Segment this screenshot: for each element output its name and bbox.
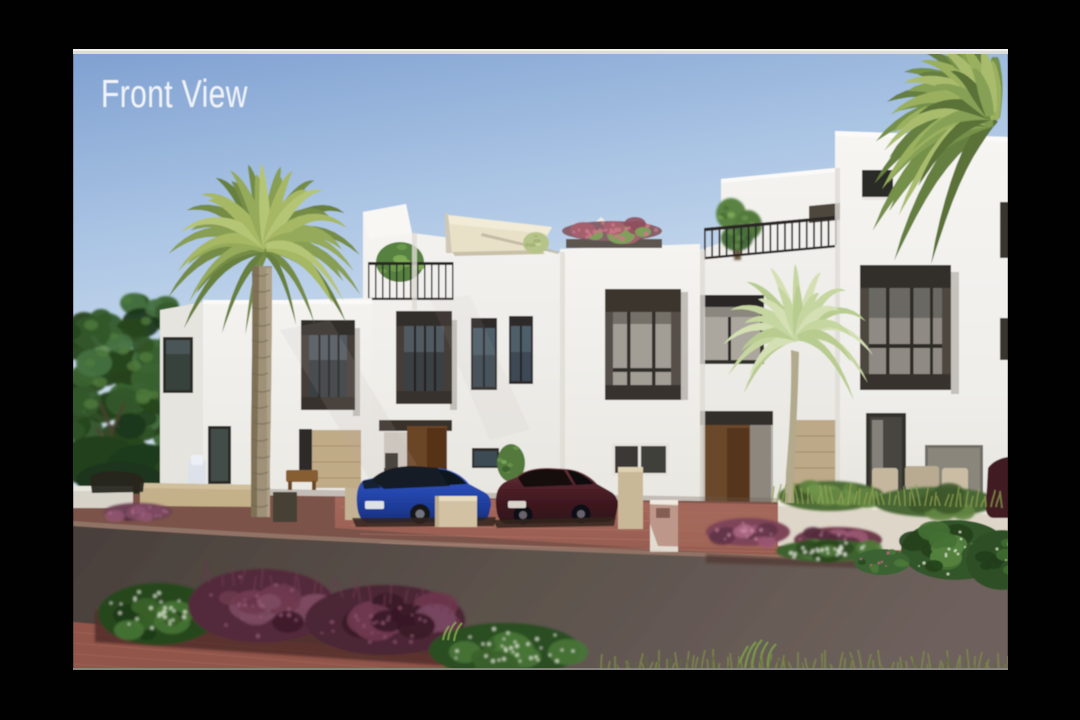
svg-text:Front View: Front View — [101, 74, 248, 116]
